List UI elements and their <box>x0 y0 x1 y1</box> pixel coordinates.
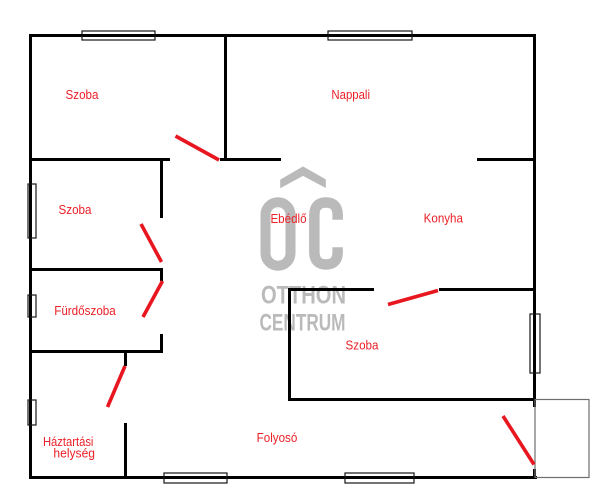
svg-text:Ebédlő: Ebédlő <box>270 211 306 226</box>
svg-text:CENTRUM: CENTRUM <box>260 310 346 337</box>
svg-text:Szoba: Szoba <box>346 338 380 353</box>
svg-text:Szoba: Szoba <box>66 87 100 102</box>
svg-text:helység: helység <box>53 446 95 461</box>
svg-text:Konyha: Konyha <box>424 211 464 226</box>
svg-text:Folyosó: Folyosó <box>257 430 298 445</box>
svg-text:Nappali: Nappali <box>331 87 370 102</box>
svg-text:Szoba: Szoba <box>59 202 93 217</box>
svg-text:OTTHON: OTTHON <box>261 281 346 309</box>
svg-text:Fürdőszoba: Fürdőszoba <box>54 303 116 318</box>
